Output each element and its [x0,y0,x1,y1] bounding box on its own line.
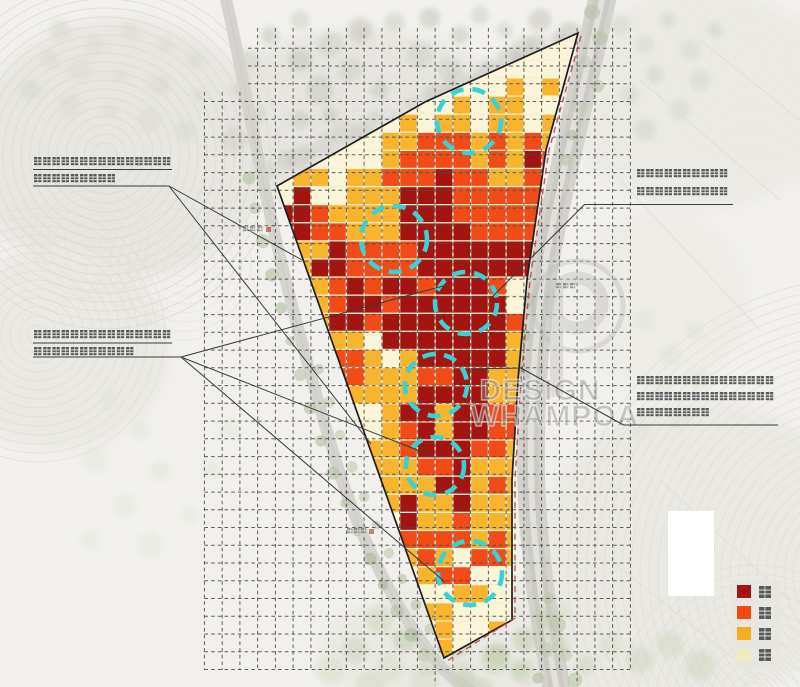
svg-text:WHAMPOA: WHAMPOA [471,400,640,433]
